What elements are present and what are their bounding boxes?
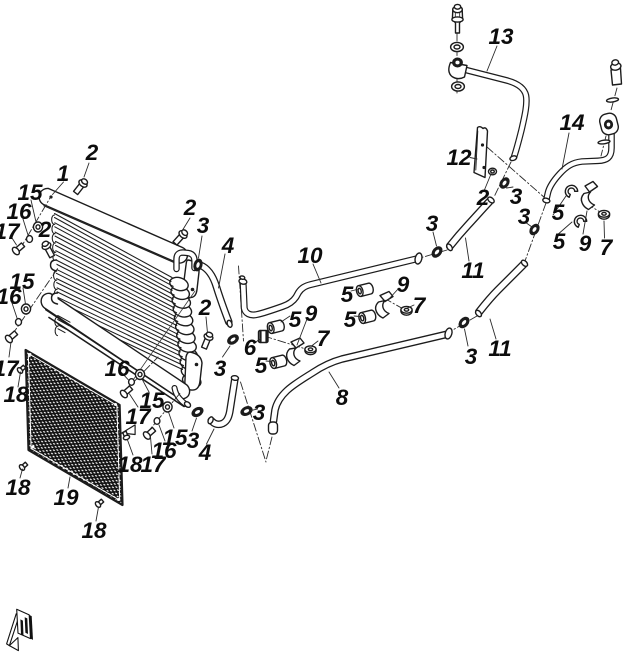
- svg-text:1: 1: [57, 161, 70, 186]
- svg-text:4: 4: [221, 233, 235, 258]
- svg-text:18: 18: [117, 452, 143, 477]
- svg-text:18: 18: [5, 475, 31, 500]
- svg-text:5: 5: [344, 307, 357, 332]
- svg-text:7: 7: [413, 293, 427, 318]
- svg-text:2: 2: [85, 140, 99, 165]
- svg-text:3: 3: [197, 213, 210, 238]
- svg-text:2: 2: [476, 185, 490, 210]
- svg-text:5: 5: [341, 282, 354, 307]
- svg-text:16: 16: [0, 284, 22, 309]
- svg-text:18: 18: [3, 382, 29, 407]
- svg-text:5: 5: [255, 353, 268, 378]
- svg-text:5: 5: [553, 229, 566, 254]
- svg-text:3: 3: [214, 356, 227, 381]
- svg-text:17: 17: [140, 452, 167, 477]
- svg-text:11: 11: [461, 258, 484, 283]
- svg-text:9: 9: [397, 272, 410, 297]
- svg-text:2: 2: [183, 195, 197, 220]
- svg-text:9: 9: [305, 301, 318, 326]
- svg-text:3: 3: [465, 344, 478, 369]
- svg-text:4: 4: [198, 440, 212, 465]
- svg-text:18: 18: [81, 518, 107, 543]
- svg-text:19: 19: [53, 485, 79, 510]
- svg-text:3: 3: [426, 211, 439, 236]
- svg-text:6: 6: [244, 335, 257, 360]
- svg-text:5: 5: [552, 200, 565, 225]
- svg-text:17: 17: [0, 219, 21, 244]
- svg-text:10: 10: [297, 243, 323, 268]
- svg-text:3: 3: [253, 400, 266, 425]
- svg-text:14: 14: [559, 110, 585, 135]
- svg-text:17: 17: [0, 356, 20, 381]
- svg-text:8: 8: [336, 385, 349, 410]
- svg-text:2: 2: [38, 217, 52, 242]
- svg-text:7: 7: [317, 326, 331, 351]
- svg-text:16: 16: [104, 356, 130, 381]
- svg-text:12: 12: [446, 145, 472, 170]
- svg-text:3: 3: [518, 204, 531, 229]
- svg-text:17: 17: [125, 404, 152, 429]
- svg-text:5: 5: [289, 307, 302, 332]
- svg-text:13: 13: [488, 24, 514, 49]
- svg-text:11: 11: [488, 336, 511, 361]
- svg-text:7: 7: [600, 235, 614, 260]
- svg-text:2: 2: [198, 295, 212, 320]
- svg-text:9: 9: [579, 231, 592, 256]
